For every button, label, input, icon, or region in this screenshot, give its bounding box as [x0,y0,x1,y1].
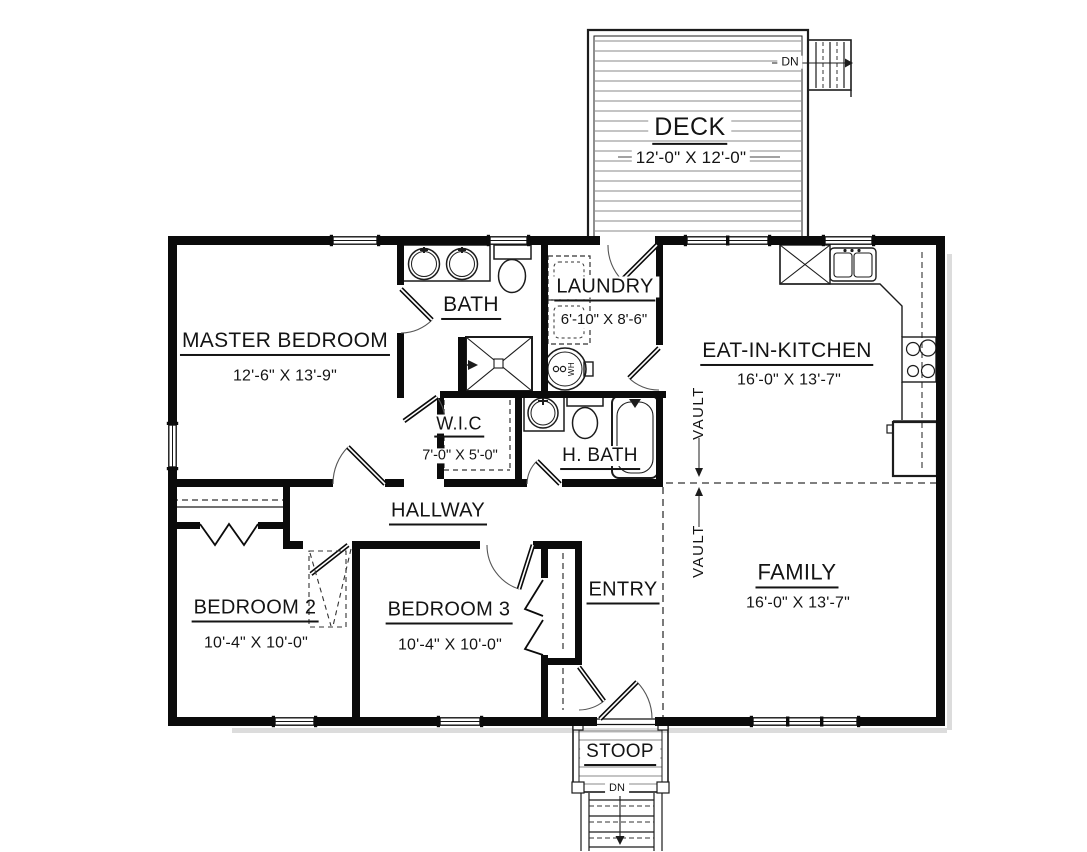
vault-arrow-down [695,468,703,477]
bedroom3-dims: 10'-4" X 10'-0" [398,638,502,655]
vault-label-upper: VAULT [691,386,707,440]
window [437,716,483,727]
stoop-title: STOOP [584,741,656,766]
shower-head-icon [468,360,478,370]
laundry-label: LAUNDRY [550,277,659,298]
window [330,235,380,246]
hbath-label: H. BATH [556,446,644,466]
wic-title: W.I.C [434,414,484,438]
bedroom2-title: BEDROOM 2 [192,597,319,623]
bedroom2-dims: 10'-4" X 10'-0" [204,636,308,653]
bedroom3-title: BEDROOM 3 [386,599,513,625]
hbath-toilet-bowl [573,408,598,439]
bath-toilet-bowl [499,260,526,293]
stoop-label: STOOP [580,742,660,762]
laundry-title: LAUNDRY [554,276,655,302]
window [272,716,317,727]
water-heater-label: WH [568,362,576,376]
entry-label: ENTRY [587,580,660,601]
kitchen-title: EAT-IN-KITCHEN [700,339,873,366]
wic-label: W.I.C [430,415,488,434]
master-bedroom-dims: 12'-6" X 13'-9" [233,369,337,386]
window [167,422,178,470]
wic-dims: 7'-0" X 5'-0" [418,448,501,463]
entry-title: ENTRY [587,579,660,605]
window [822,235,875,246]
bath-label: BATH [441,294,501,316]
vault-label-lower: VAULT [691,524,707,578]
floor-plan-drawing [0,0,1087,852]
deck-dims: 12'-0" X 12'-0" [632,149,750,167]
stoop-stairs-arrow [616,836,625,845]
front-door-sill [597,718,655,725]
master-bedroom-label: MASTER BEDROOM [180,330,390,352]
window [487,235,530,246]
window [684,235,771,246]
family-label: FAMILY [755,560,838,583]
refrigerator [893,422,937,476]
deck-title: DECK [652,113,727,145]
bath-title: BATH [441,293,501,320]
closet-lines [172,400,563,710]
hallway-label: HALLWAY [389,501,487,522]
hbath-title: H. BATH [560,445,640,470]
tub-faucet-icon [629,399,641,408]
family-dims: 16'-0" X 13'-7" [746,596,850,613]
bath-toilet-tank [494,245,531,259]
vault-arrow-up [695,487,703,496]
laundry-dims: 6'-10" X 8'-6" [557,312,651,328]
deck-label: DECK [648,114,731,140]
window [750,716,860,727]
hallway-title: HALLWAY [389,500,487,526]
family-title: FAMILY [755,559,838,588]
deck-dn-label: DN [777,56,802,69]
stoop-dn-label: DN [605,783,629,795]
floor-plan: DECK 12'-0" X 12'-0" DN MASTER BEDROOM 1… [0,0,1087,852]
bedroom3-label: BEDROOM 3 [386,600,513,621]
stove [902,337,936,382]
kitchen-dims: 16'-0" X 13'-7" [737,373,841,390]
kitchen-label: EAT-IN-KITCHEN [700,340,873,362]
bedroom2-label: BEDROOM 2 [192,598,319,619]
master-bedroom-title: MASTER BEDROOM [180,329,390,356]
stoop-stairs [581,793,662,851]
